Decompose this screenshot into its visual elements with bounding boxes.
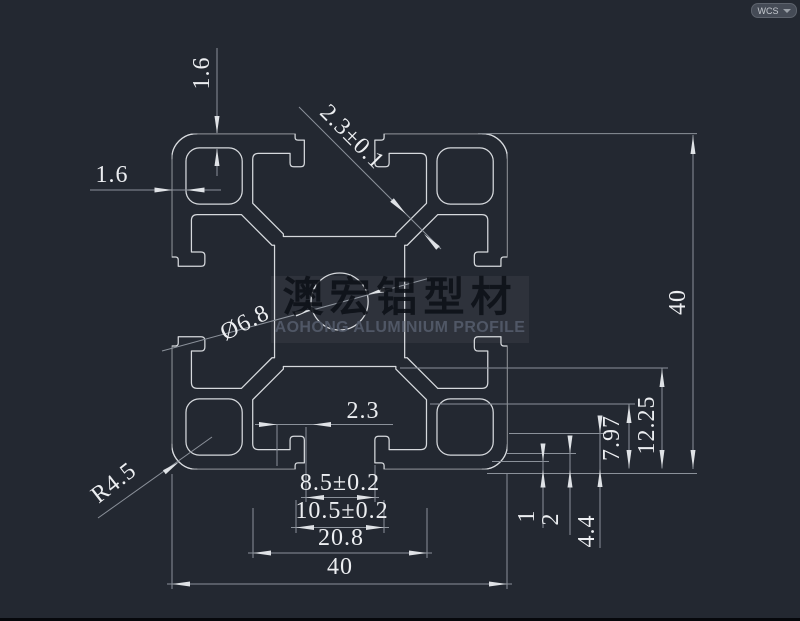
chevron-down-icon — [783, 9, 791, 13]
dim-slot-cavity-width: 20.8 — [318, 526, 364, 550]
dim-slot-inner-opening: 10.5±0.2 — [295, 499, 388, 523]
watermark-chinese: 澳宏铝型材 — [271, 277, 529, 318]
dim-step-2: 2 — [539, 513, 563, 526]
watermark: 澳宏铝型材 AOHONG ALUMINIUM PROFILE — [271, 276, 529, 343]
dim-step-3: 4.4 — [575, 515, 599, 548]
dim-overall-width: 40 — [327, 555, 353, 579]
dim-bottom-lip-offset: 2.3 — [347, 399, 380, 423]
dim-step-5: 12.25 — [635, 396, 659, 455]
cad-canvas: 澳宏铝型材 AOHONG ALUMINIUM PROFILE 1.6 1.6 2… — [0, 0, 800, 621]
dim-left-wall-thickness: 1.6 — [96, 163, 129, 187]
watermark-english: AOHONG ALUMINIUM PROFILE — [271, 320, 529, 336]
dim-step-4: 7.97 — [600, 415, 624, 461]
wcs-label: WCS — [758, 6, 779, 16]
dim-slot-opening: 8.5±0.2 — [300, 471, 380, 495]
dimension-arrows — [155, 116, 696, 587]
dim-top-wall-thickness: 1.6 — [190, 57, 214, 90]
dim-step-1: 1 — [515, 510, 539, 523]
dim-overall-height: 40 — [666, 289, 690, 315]
wcs-dropdown[interactable]: WCS — [751, 3, 797, 18]
